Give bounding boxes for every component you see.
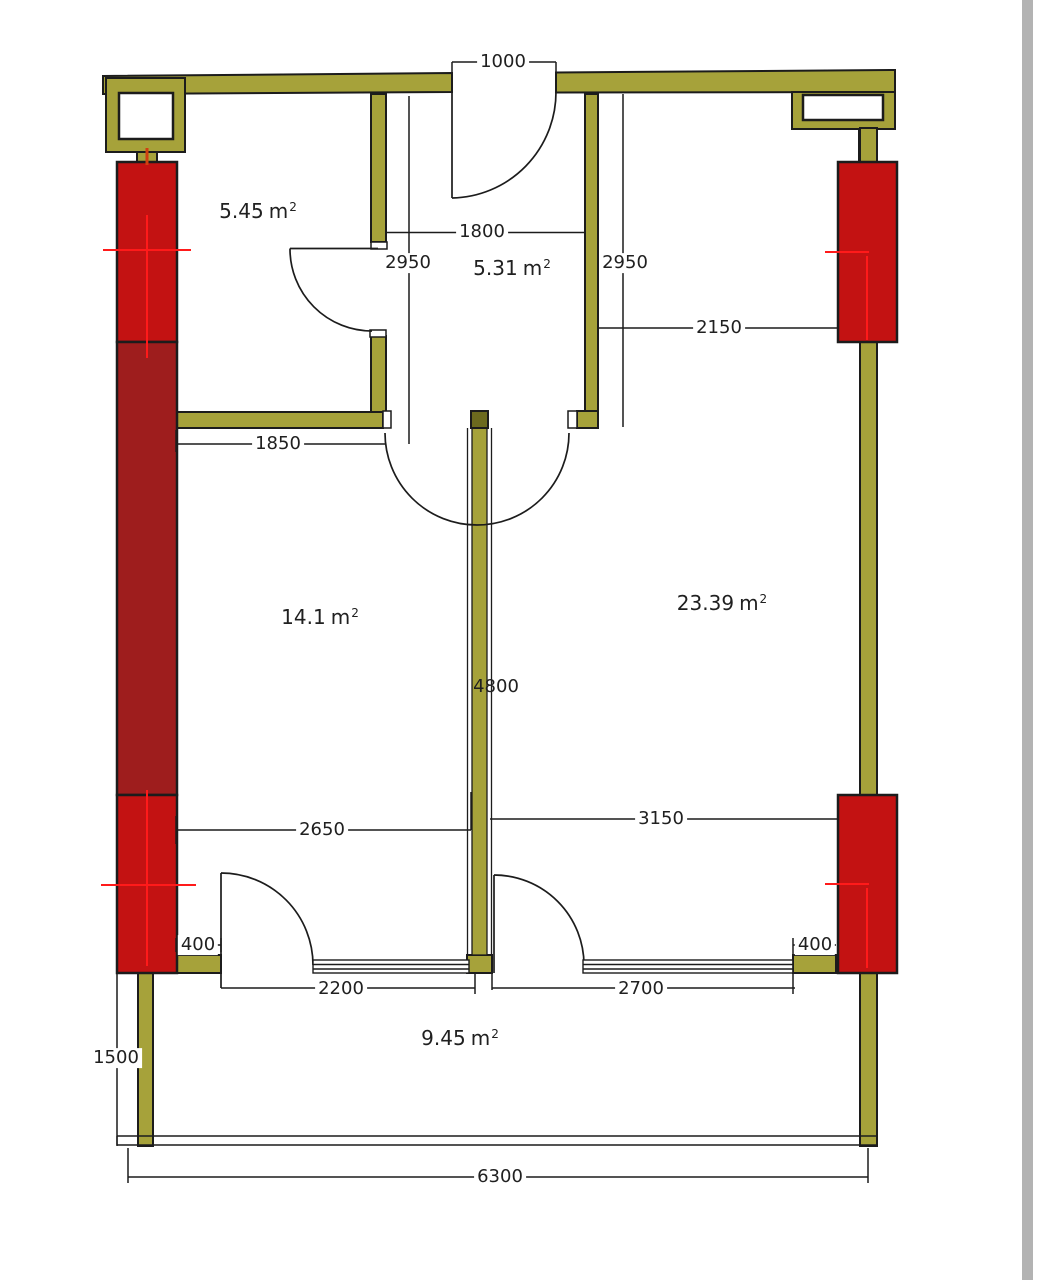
room-area-exp: 2 <box>543 257 551 271</box>
doors-group <box>221 92 584 988</box>
wall-center-foot <box>467 955 492 973</box>
floor-plan-page: 5.45m2 5.31m2 14.1m2 23.39m2 9.45m2 1000… <box>0 0 1038 1280</box>
dim-label-4800: 4800 <box>470 677 522 697</box>
room-area-exp: 2 <box>760 592 768 606</box>
room-area-label-9-45: 9.45m2 <box>421 1026 499 1050</box>
room-area-unit: m <box>471 1026 490 1050</box>
entrance-door-arc <box>452 92 556 198</box>
dim-label-400-left: 400 <box>178 935 218 955</box>
room-area-exp: 2 <box>289 200 297 214</box>
floor-plan-canvas <box>0 0 1038 1280</box>
room-area-exp: 2 <box>351 606 359 620</box>
dim-label-2200: 2200 <box>315 979 367 999</box>
room3-balcony-door-arc <box>494 875 584 965</box>
room-area-value: 23.39 <box>677 591 734 615</box>
page-edge-stripe <box>1022 0 1033 1280</box>
room1-door-arc <box>290 249 372 332</box>
shaft-top-left-inner <box>119 93 173 139</box>
columns-group <box>117 162 897 973</box>
shaft-top-right-inner <box>803 95 883 120</box>
wall-top-right-segment <box>556 70 895 93</box>
room-area-unit: m <box>523 256 542 280</box>
room2-balcony-door-arc <box>221 873 313 965</box>
dim-label-1850: 1850 <box>252 434 304 454</box>
room-area-label-5-31: 5.31m2 <box>473 256 551 280</box>
dim-label-1000: 1000 <box>477 52 529 72</box>
jamb-corridor-right <box>568 411 577 428</box>
window-bottom-right <box>583 960 793 973</box>
window-bottom-left <box>313 960 469 973</box>
wall-b <box>585 94 598 412</box>
wall-a-upper <box>371 94 386 242</box>
wall-room1-bottom <box>175 412 383 428</box>
room-area-unit: m <box>739 591 758 615</box>
jamb-room1-door-bottom <box>370 330 386 337</box>
wall-bottom-right-stub <box>793 955 836 973</box>
dim-label-1500: 1500 <box>90 1048 142 1068</box>
room-area-unit: m <box>331 605 350 629</box>
wall-bottom-left-stub <box>175 955 221 973</box>
dim-label-2650: 2650 <box>296 820 348 840</box>
room-area-unit: m <box>269 199 288 223</box>
dim-label-400-right: 400 <box>795 935 835 955</box>
wall-a-lower <box>371 336 386 421</box>
column-left-middle <box>117 342 177 795</box>
dim-label-2700: 2700 <box>615 979 667 999</box>
room-area-label-14-1: 14.1m2 <box>281 605 359 629</box>
room-area-value: 5.45 <box>219 199 264 223</box>
dim-label-1800: 1800 <box>456 222 508 242</box>
jamb-corridor-left <box>383 411 391 428</box>
wall-b-cap <box>577 411 598 428</box>
dim-label-2150: 2150 <box>693 318 745 338</box>
dim-label-6300: 6300 <box>474 1167 526 1187</box>
room-area-value: 14.1 <box>281 605 326 629</box>
room-area-value: 5.31 <box>473 256 518 280</box>
room-area-label-5-45: 5.45m2 <box>219 199 297 223</box>
room-area-exp: 2 <box>491 1027 499 1041</box>
dim-label-2950-right: 2950 <box>599 253 651 273</box>
wall-center-cap <box>471 411 488 428</box>
dim-label-2950-left: 2950 <box>382 253 434 273</box>
room-area-label-23-39: 23.39m2 <box>677 591 767 615</box>
dim-label-3150: 3150 <box>635 809 687 829</box>
room-area-value: 9.45 <box>421 1026 466 1050</box>
